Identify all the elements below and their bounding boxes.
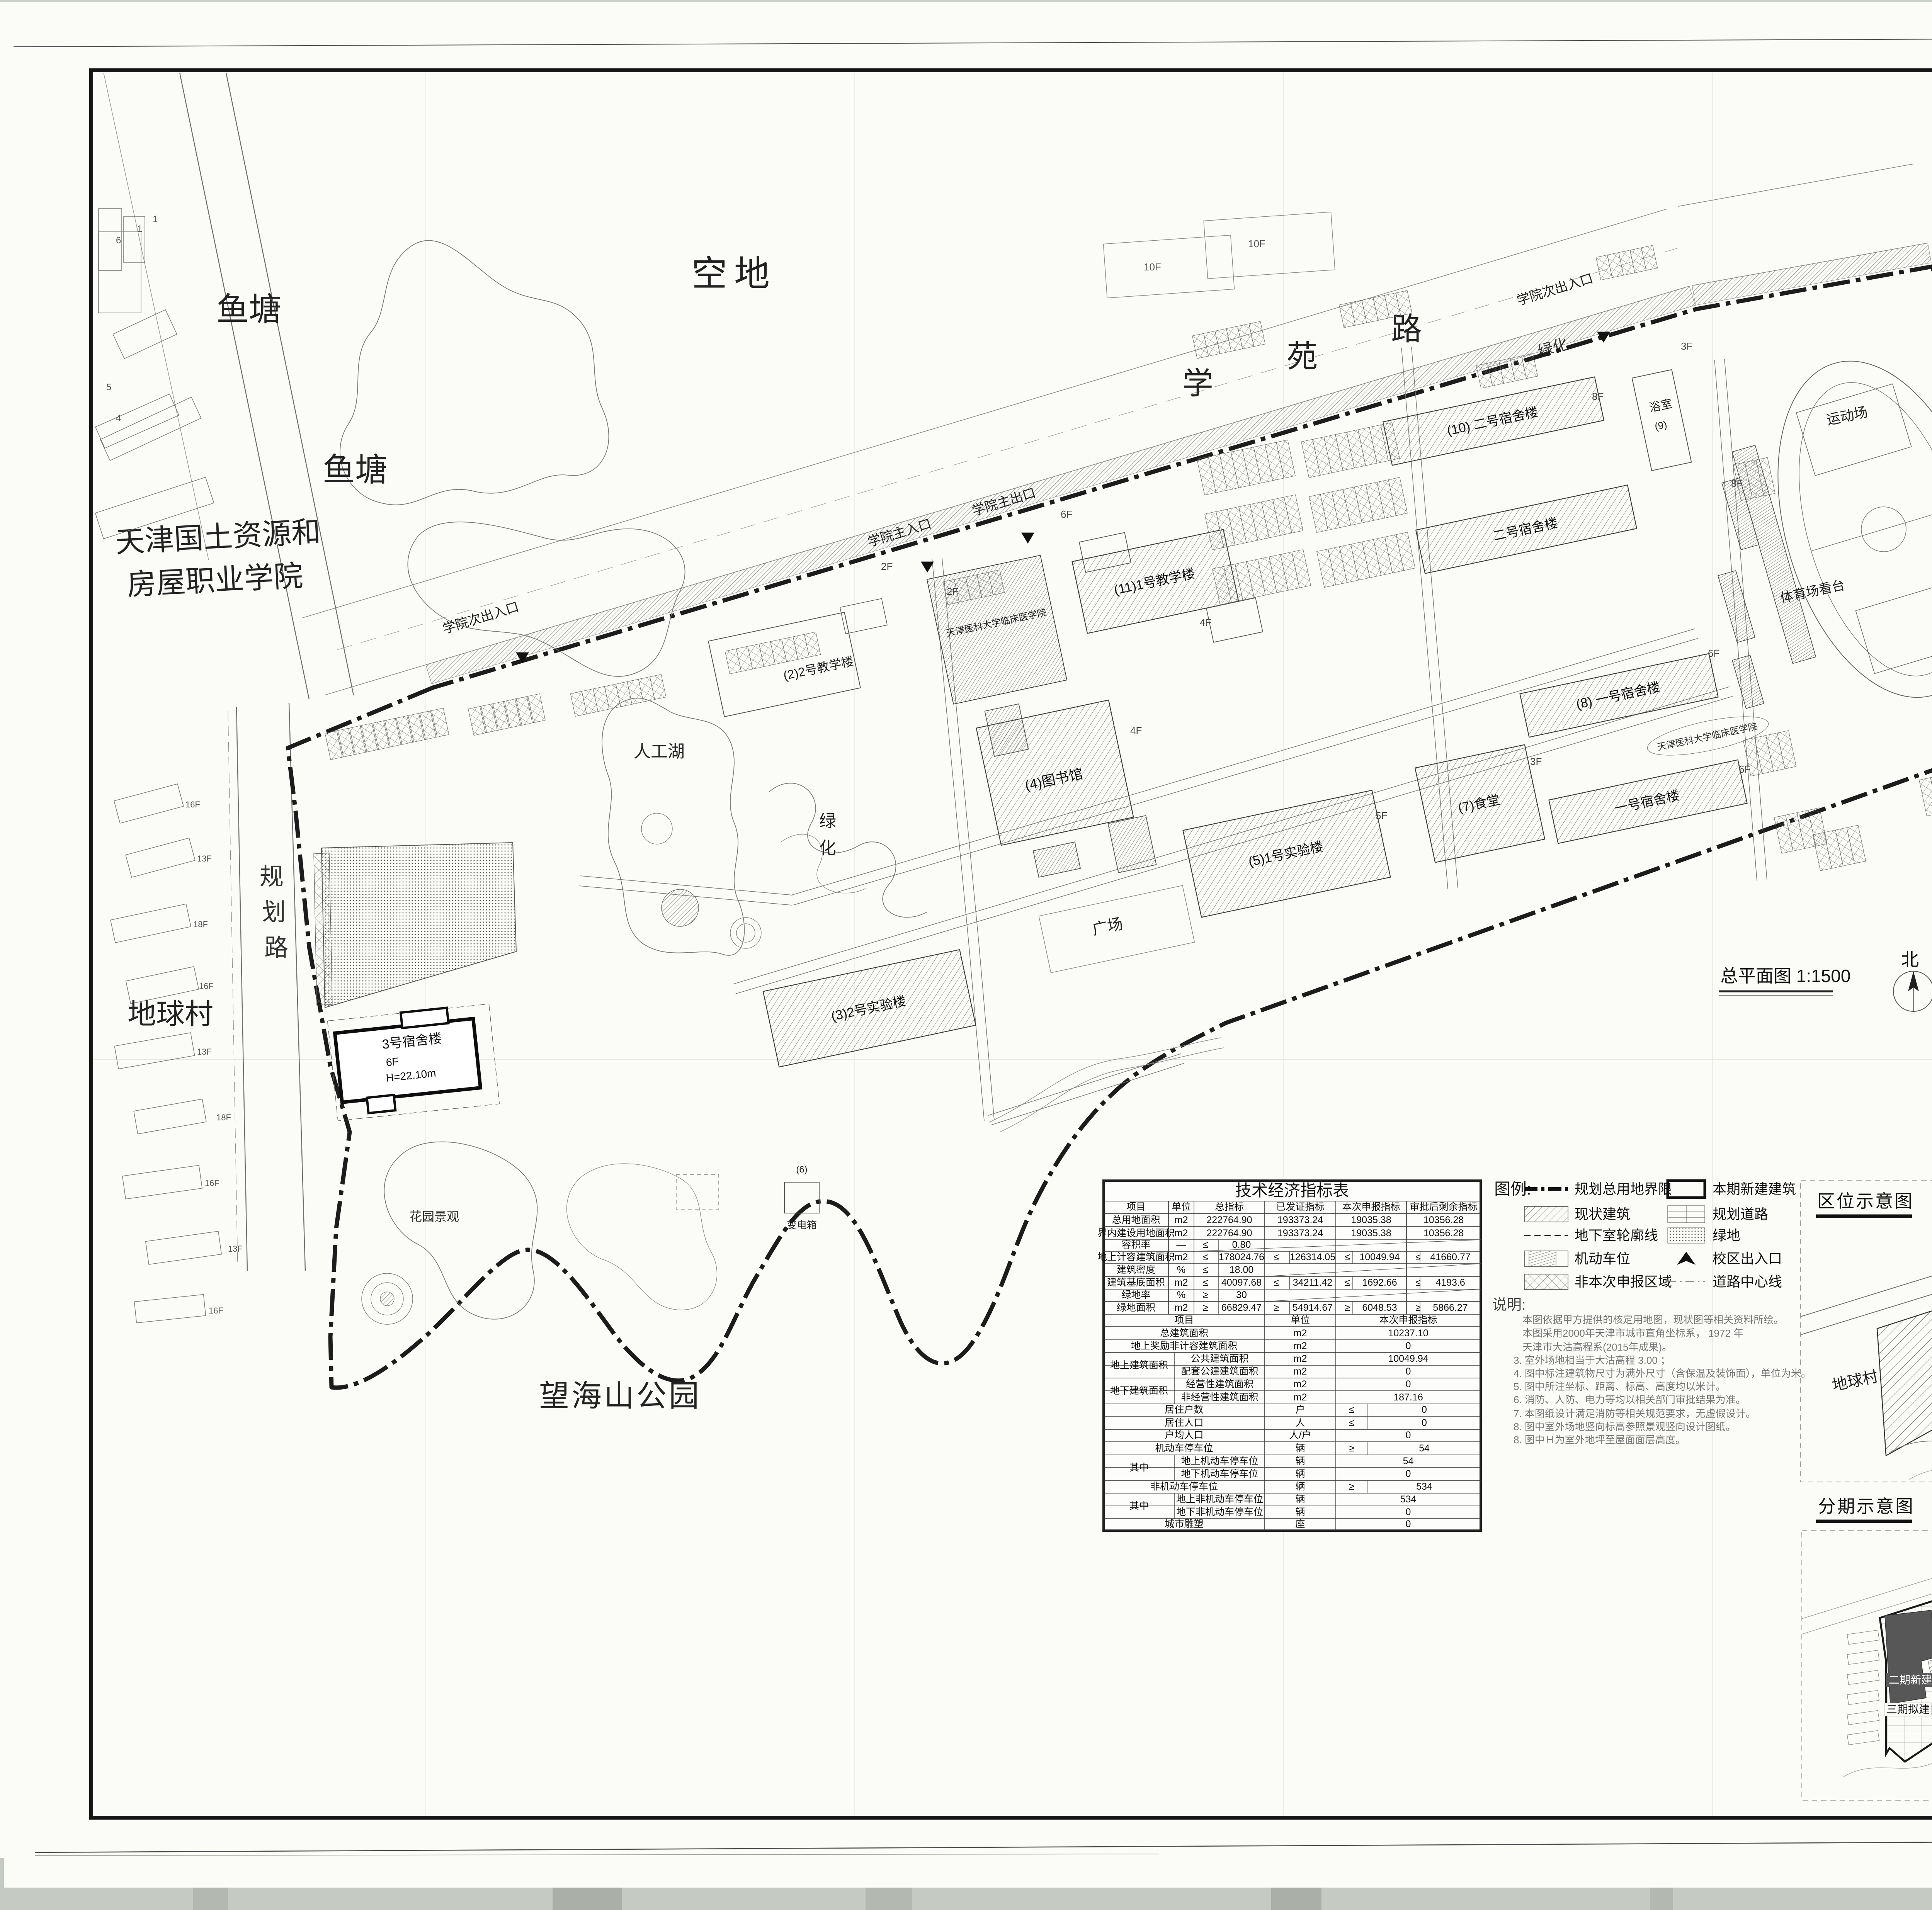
svg-text:8. 图中Ｈ为室外地坪至屋面面层高度。: 8. 图中Ｈ为室外地坪至屋面面层高度。 (1514, 1434, 1685, 1446)
svg-text:绿: 绿 (819, 812, 836, 831)
svg-text:54914.67: 54914.67 (1293, 1302, 1333, 1313)
svg-text:绿地面积: 绿地面积 (1117, 1302, 1155, 1313)
svg-text:其中: 其中 (1129, 1500, 1149, 1511)
svg-text:3F: 3F (1530, 756, 1542, 767)
svg-text:人工湖: 人工湖 (634, 742, 685, 761)
svg-text:40097.68: 40097.68 (1221, 1277, 1262, 1288)
svg-text:审批后剩余指标: 审批后剩余指标 (1410, 1201, 1477, 1212)
svg-text:2F: 2F (947, 586, 958, 597)
svg-text:m2: m2 (1294, 1353, 1307, 1364)
svg-text:2F: 2F (881, 561, 893, 572)
svg-text:13F: 13F (197, 854, 212, 863)
svg-text:总平面图 1:1500: 总平面图 1:1500 (1720, 966, 1850, 986)
svg-text:4F: 4F (1130, 725, 1142, 736)
svg-text:单位: 单位 (1172, 1201, 1191, 1212)
svg-text:7. 本图纸设计满足消防等相关规范要求，无虚假设计。: 7. 本图纸设计满足消防等相关规范要求，无虚假设计。 (1514, 1408, 1756, 1419)
svg-text:地上非机动车停车位: 地上非机动车停车位 (1176, 1494, 1263, 1505)
svg-text:非经营性建筑面积: 非经营性建筑面积 (1181, 1392, 1258, 1403)
svg-text:m2: m2 (1175, 1252, 1188, 1263)
svg-text:≥: ≥ (1203, 1290, 1208, 1300)
svg-text:路: 路 (264, 935, 288, 961)
svg-text:非本次申报区域: 非本次申报区域 (1575, 1274, 1672, 1290)
svg-text:人/户: 人/户 (1289, 1430, 1311, 1441)
svg-text:花园景观: 花园景观 (410, 1210, 459, 1223)
svg-text:空地: 空地 (692, 254, 777, 294)
svg-text:鱼塘: 鱼塘 (323, 452, 388, 488)
svg-text:规划道路: 规划道路 (1713, 1206, 1768, 1222)
svg-text:≤: ≤ (1349, 1404, 1354, 1415)
svg-text:18F: 18F (193, 919, 208, 929)
svg-text:13F: 13F (197, 1047, 212, 1057)
svg-text:技术经济指标表: 技术经济指标表 (1235, 1181, 1349, 1200)
svg-text:19035.38: 19035.38 (1351, 1215, 1391, 1225)
svg-text:16F: 16F (205, 1178, 219, 1188)
svg-text:0: 0 (1406, 1519, 1411, 1529)
svg-text:13F: 13F (228, 1244, 243, 1254)
svg-text:≤: ≤ (1203, 1239, 1208, 1250)
svg-text:18F: 18F (216, 1113, 231, 1122)
svg-text:辆: 辆 (1295, 1443, 1305, 1454)
svg-text:10356.28: 10356.28 (1423, 1215, 1464, 1225)
svg-text:4F: 4F (1200, 617, 1211, 628)
svg-text:地球村: 地球村 (128, 998, 213, 1030)
svg-text:534: 534 (1416, 1481, 1432, 1492)
svg-text:地下非机动车停车位: 地下非机动车停车位 (1176, 1507, 1263, 1517)
svg-text:34211.42: 34211.42 (1293, 1277, 1332, 1288)
svg-text:≤: ≤ (1203, 1252, 1208, 1263)
svg-text:≤: ≤ (1349, 1417, 1354, 1428)
svg-text:187.16: 187.16 (1393, 1392, 1423, 1403)
svg-text:地上计容建筑面积: 地上计容建筑面积 (1097, 1252, 1175, 1263)
svg-text:222764.90: 222764.90 (1206, 1228, 1252, 1239)
svg-text:≤: ≤ (1415, 1277, 1421, 1288)
svg-text:望海山公园: 望海山公园 (539, 1379, 701, 1413)
svg-text:m2: m2 (1294, 1366, 1307, 1377)
svg-text:地下机动车停车位: 地下机动车停车位 (1181, 1468, 1258, 1479)
svg-text:10049.94: 10049.94 (1359, 1252, 1400, 1263)
svg-text:5: 5 (106, 382, 111, 393)
svg-text:16F: 16F (209, 1306, 223, 1315)
svg-text:本图采用2000年天津市城市直角坐标系， 1972 年: 本图采用2000年天津市城市直角坐标系， 1972 年 (1522, 1327, 1743, 1339)
svg-text:本次申报指标: 本次申报指标 (1342, 1201, 1400, 1212)
svg-text:总建筑面积: 总建筑面积 (1160, 1328, 1208, 1339)
svg-text:化: 化 (819, 839, 836, 858)
svg-text:地下室轮廓线: 地下室轮廓线 (1575, 1227, 1658, 1243)
svg-text:居住人口: 居住人口 (1165, 1417, 1203, 1428)
svg-text:4193.6: 4193.6 (1435, 1277, 1465, 1288)
svg-text:1: 1 (137, 224, 142, 234)
svg-text:≥: ≥ (1349, 1443, 1354, 1454)
svg-text:本图依据甲方提供的核定用地图，现状图等相关资料所绘。: 本图依据甲方提供的核定用地图，现状图等相关资料所绘。 (1522, 1314, 1784, 1325)
svg-text:0: 0 (1406, 1468, 1411, 1479)
svg-text:地上奖励非计容建筑面积: 地上奖励非计容建筑面积 (1131, 1341, 1237, 1351)
svg-text:3. 室外场地相当于大沽高程 3.00 ；: 3. 室外场地相当于大沽高程 3.00 ； (1514, 1354, 1670, 1366)
svg-text:5866.27: 5866.27 (1433, 1302, 1468, 1313)
svg-text:机动车位: 机动车位 (1575, 1251, 1630, 1266)
svg-text:0: 0 (1406, 1366, 1411, 1377)
svg-text:界内建设用地面积: 界内建设用地面积 (1097, 1228, 1175, 1239)
svg-text:8F: 8F (1592, 391, 1604, 402)
svg-text:66829.47: 66829.47 (1221, 1302, 1262, 1313)
svg-text:%: % (1177, 1290, 1185, 1300)
svg-text:≤: ≤ (1345, 1277, 1350, 1288)
svg-text:路: 路 (1391, 312, 1422, 347)
svg-text:≤: ≤ (1203, 1264, 1208, 1275)
svg-text:其中: 其中 (1129, 1462, 1149, 1473)
svg-text:4: 4 (116, 413, 121, 423)
svg-text:≥: ≥ (1415, 1302, 1421, 1313)
svg-text:(6): (6) (796, 1164, 807, 1175)
svg-text:0: 0 (1406, 1379, 1411, 1390)
svg-text:地上机动车停车位: 地上机动车停车位 (1181, 1456, 1258, 1466)
svg-text:8. 图中室外场地竖向标高参照景观竖向设计图纸。: 8. 图中室外场地竖向标高参照景观竖向设计图纸。 (1514, 1421, 1736, 1432)
svg-text:座: 座 (1295, 1519, 1305, 1529)
svg-text:m2: m2 (1175, 1228, 1188, 1239)
svg-text:容积率: 容积率 (1121, 1239, 1150, 1250)
svg-text:≤: ≤ (1274, 1252, 1279, 1263)
svg-text:m2: m2 (1175, 1302, 1188, 1313)
svg-text:≤: ≤ (1203, 1277, 1208, 1288)
svg-text:公共建筑面积: 公共建筑面积 (1190, 1353, 1248, 1364)
svg-text:534: 534 (1400, 1494, 1417, 1505)
svg-text:6048.53: 6048.53 (1362, 1302, 1397, 1313)
svg-text:1: 1 (153, 214, 158, 224)
svg-text:北: 北 (1901, 950, 1919, 970)
svg-text:10F: 10F (1144, 261, 1161, 273)
svg-text:126314.05: 126314.05 (1290, 1252, 1335, 1263)
svg-text:变电箱: 变电箱 (787, 1219, 817, 1231)
svg-text:41660.77: 41660.77 (1430, 1252, 1470, 1263)
svg-text:≥: ≥ (1349, 1481, 1354, 1492)
svg-text:m2: m2 (1294, 1392, 1307, 1403)
svg-text:经营性建筑面积: 经营性建筑面积 (1186, 1379, 1253, 1390)
svg-text:辆: 辆 (1295, 1456, 1305, 1466)
svg-text:m2: m2 (1294, 1379, 1307, 1390)
svg-text:16F: 16F (185, 800, 200, 809)
svg-text:≥: ≥ (1274, 1302, 1279, 1313)
svg-text:校区出入口: 校区出入口 (1713, 1251, 1782, 1266)
svg-text:6F: 6F (385, 1055, 399, 1069)
svg-text:10356.28: 10356.28 (1423, 1228, 1464, 1239)
svg-text:0: 0 (1406, 1507, 1411, 1517)
svg-text:划: 划 (262, 899, 286, 926)
svg-text:%: % (1177, 1264, 1185, 1275)
svg-text:配套公建建筑面积: 配套公建建筑面积 (1181, 1366, 1258, 1377)
svg-text:10F: 10F (1248, 238, 1265, 250)
svg-text:10237.10: 10237.10 (1388, 1328, 1428, 1339)
svg-text:m2: m2 (1175, 1277, 1188, 1288)
svg-text:苑: 苑 (1287, 339, 1318, 374)
svg-text:0: 0 (1406, 1341, 1411, 1351)
svg-text:6F: 6F (1061, 508, 1072, 520)
svg-text:学: 学 (1182, 366, 1213, 401)
svg-text:6: 6 (116, 235, 121, 246)
svg-text:辆: 辆 (1295, 1494, 1305, 1505)
svg-text:m2: m2 (1175, 1215, 1188, 1225)
svg-text:绿地率: 绿地率 (1121, 1290, 1150, 1300)
svg-text:总指标: 总指标 (1215, 1201, 1244, 1212)
svg-text:规: 规 (260, 863, 284, 890)
svg-text:5. 图中所注坐标、距离、标高、高度均以米计。: 5. 图中所注坐标、距离、标高、高度均以米计。 (1514, 1381, 1726, 1392)
svg-text:项目: 项目 (1126, 1201, 1146, 1212)
svg-text:户: 户 (1295, 1404, 1305, 1415)
svg-text:辆: 辆 (1295, 1468, 1305, 1479)
svg-text:6F: 6F (1739, 763, 1750, 775)
svg-text:地下建筑面积: 地下建筑面积 (1110, 1385, 1168, 1396)
svg-text:193373.24: 193373.24 (1277, 1228, 1323, 1239)
svg-text:辆: 辆 (1295, 1507, 1305, 1517)
svg-text:已发证指标: 已发证指标 (1276, 1201, 1324, 1212)
svg-text:≥: ≥ (1203, 1302, 1208, 1313)
svg-text:人: 人 (1295, 1417, 1305, 1428)
svg-text:单位: 单位 (1291, 1315, 1310, 1325)
svg-text:5F: 5F (1376, 810, 1387, 821)
svg-text:建筑密度: 建筑密度 (1117, 1264, 1155, 1275)
svg-text:居住户数: 居住户数 (1165, 1404, 1203, 1415)
svg-text:0.80: 0.80 (1232, 1239, 1251, 1250)
svg-text:非机动车停车位: 非机动车停车位 (1150, 1481, 1218, 1492)
svg-text:6F: 6F (1708, 647, 1719, 659)
svg-text:0: 0 (1422, 1417, 1427, 1428)
svg-text:机动车停车位: 机动车停车位 (1155, 1443, 1213, 1454)
svg-text:本次申报指标: 本次申报指标 (1379, 1315, 1437, 1325)
svg-text:≤: ≤ (1345, 1252, 1350, 1263)
svg-text:3F: 3F (1681, 340, 1692, 352)
svg-text:分期示意图: 分期示意图 (1818, 1496, 1915, 1516)
svg-text:≤: ≤ (1274, 1277, 1279, 1288)
svg-text:18.00: 18.00 (1230, 1264, 1254, 1275)
svg-text:现状建筑: 现状建筑 (1575, 1206, 1630, 1222)
svg-text:项目: 项目 (1174, 1315, 1194, 1325)
svg-text:4. 图中标注建筑物尺寸为满外尺寸（含保温及装饰面），单位为: 4. 图中标注建筑物尺寸为满外尺寸（含保温及装饰面），单位为米。 (1514, 1368, 1811, 1379)
svg-text:m2: m2 (1294, 1328, 1307, 1339)
svg-text:建筑基底面积: 建筑基底面积 (1107, 1277, 1165, 1288)
svg-text:地上建筑面积: 地上建筑面积 (1110, 1360, 1168, 1371)
svg-text:m2: m2 (1294, 1341, 1307, 1351)
svg-text:规划总用地界限: 规划总用地界限 (1575, 1181, 1672, 1197)
svg-text:说明:: 说明: (1492, 1297, 1526, 1313)
svg-text:16F: 16F (199, 981, 214, 991)
svg-text:193373.24: 193373.24 (1277, 1215, 1323, 1225)
svg-text:鱼塘: 鱼塘 (216, 291, 281, 328)
svg-text:6. 消防、人防、电力等均以相关部门审批结果为准。: 6. 消防、人防、电力等均以相关部门审批结果为准。 (1514, 1394, 1746, 1405)
svg-text:三期拟建: 三期拟建 (1886, 1703, 1930, 1715)
svg-text:178024.76: 178024.76 (1219, 1252, 1264, 1263)
svg-text:54: 54 (1419, 1443, 1430, 1454)
svg-text:辆: 辆 (1295, 1481, 1305, 1492)
svg-text:≥: ≥ (1345, 1302, 1350, 1313)
svg-text:19035.38: 19035.38 (1351, 1228, 1391, 1239)
svg-text:城市雕塑: 城市雕塑 (1165, 1519, 1203, 1529)
svg-text:0: 0 (1422, 1404, 1427, 1415)
svg-text:天津市大沽高程系(2015年成果)。: 天津市大沽高程系(2015年成果)。 (1522, 1341, 1672, 1353)
svg-text:—: — (1177, 1239, 1186, 1250)
svg-text:总用地面积: 总用地面积 (1112, 1215, 1160, 1225)
svg-text:本期新建建筑: 本期新建建筑 (1713, 1181, 1796, 1197)
svg-text:1692.66: 1692.66 (1362, 1277, 1397, 1288)
svg-text:二期新建: 二期新建 (1889, 1674, 1932, 1686)
svg-text:户均人口: 户均人口 (1165, 1430, 1203, 1441)
svg-text:54: 54 (1403, 1456, 1414, 1466)
svg-text:绿地: 绿地 (1713, 1227, 1740, 1243)
svg-text:30: 30 (1236, 1290, 1247, 1300)
svg-text:0: 0 (1406, 1430, 1411, 1441)
svg-text:道路中心线: 道路中心线 (1713, 1274, 1782, 1290)
svg-text:8F: 8F (1731, 477, 1743, 489)
svg-text:10049.94: 10049.94 (1388, 1353, 1428, 1364)
svg-text:222764.90: 222764.90 (1206, 1215, 1252, 1225)
svg-text:≤: ≤ (1415, 1252, 1421, 1263)
svg-text:区位示意图: 区位示意图 (1817, 1191, 1914, 1211)
